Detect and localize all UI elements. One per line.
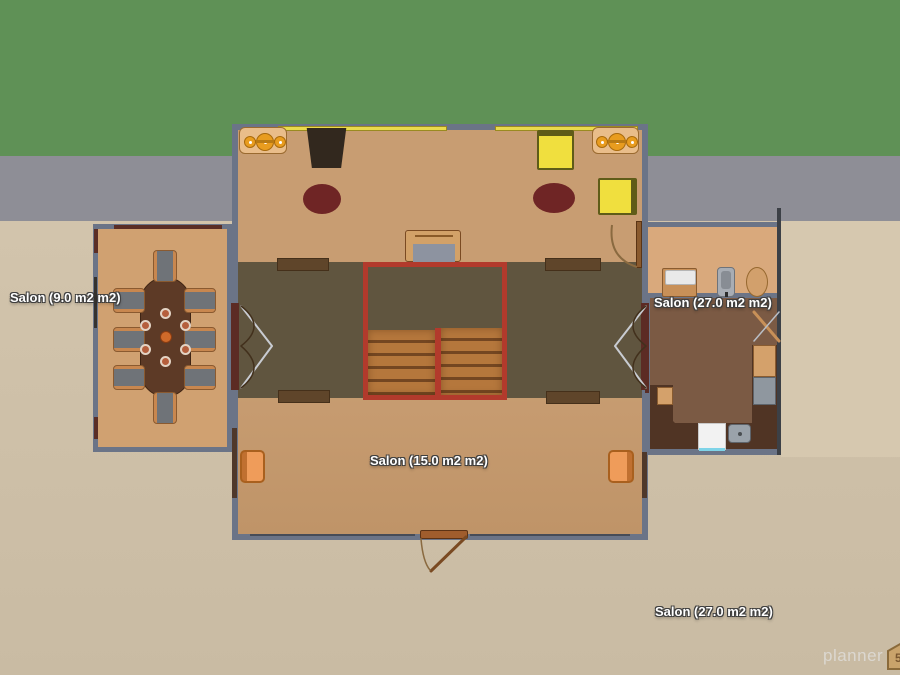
french-door-left[interactable]	[231, 303, 239, 390]
armchair-yellow-top[interactable]	[537, 130, 574, 170]
bathroom-vanity[interactable]	[662, 268, 697, 297]
window-top-left[interactable]	[278, 126, 447, 131]
ceiling-lamp-right[interactable]	[592, 127, 639, 154]
kitchen-cabinet-tan-right[interactable]	[753, 345, 776, 377]
plate[interactable]	[180, 344, 191, 355]
lamp-bulb	[244, 136, 256, 148]
floorplan-canvas: Salon (9.0 m2 m2) Salon (27.0 m2 m2) Sal…	[0, 0, 900, 675]
kitchen-cabinet-tan-left[interactable]	[657, 387, 673, 405]
vanity-sink	[665, 270, 696, 285]
watermark-badge-text: 5d	[895, 651, 900, 665]
entry-door-lintel[interactable]	[420, 530, 468, 539]
stair-divider	[435, 328, 441, 395]
bottom-wall-inner-line	[250, 534, 415, 536]
armchair-orange-right[interactable]	[608, 450, 634, 483]
sideboard-bottom-left[interactable]	[278, 390, 330, 403]
kitchen-sink[interactable]	[728, 424, 751, 443]
rug-oval-left[interactable]	[303, 184, 341, 214]
toilet[interactable]	[717, 267, 735, 297]
room-label-ground: Salon (27.0 m2 m2)	[655, 604, 773, 619]
annex-right-wall	[777, 208, 781, 455]
dining-chair-left-3[interactable]	[113, 365, 145, 390]
dining-chair-top[interactable]	[153, 250, 177, 282]
ceiling-lamp-left[interactable]	[239, 127, 287, 154]
annex-top-wall	[645, 222, 781, 227]
staircase[interactable]	[363, 262, 507, 400]
window-dining-left-1[interactable]	[94, 229, 98, 253]
kitchen-stove[interactable]	[753, 377, 776, 405]
french-door-right[interactable]	[641, 303, 649, 390]
room-label-dining: Salon (9.0 m2 m2)	[10, 290, 121, 305]
door-leaf-bathroom[interactable]	[636, 221, 642, 268]
sideboard-top-right[interactable]	[545, 258, 601, 271]
armchair-yellow-right[interactable]	[598, 178, 637, 215]
toilet-lid	[721, 271, 731, 289]
watermark-house-icon: 5d	[887, 642, 900, 670]
sideboard-top-left[interactable]	[277, 258, 329, 271]
fridge-handle	[699, 448, 725, 451]
lamp-bulb	[274, 136, 286, 148]
window-dining-top[interactable]	[114, 225, 222, 229]
table-centerpiece[interactable]	[160, 331, 172, 343]
desk[interactable]	[405, 230, 461, 262]
plate[interactable]	[140, 344, 151, 355]
plate[interactable]	[140, 320, 151, 331]
dining-chair-bottom[interactable]	[153, 392, 177, 424]
room-label-living: Salon (15.0 m2 m2)	[370, 453, 488, 468]
watermark-brand-text: planner	[823, 646, 883, 666]
desk-detail	[415, 235, 453, 237]
plate[interactable]	[160, 356, 171, 367]
plate[interactable]	[160, 308, 171, 319]
window-living-left[interactable]	[232, 428, 237, 498]
lounge-chair-dark[interactable]	[305, 128, 348, 168]
armchair-orange-left[interactable]	[240, 450, 265, 483]
stair-flight-right	[441, 328, 502, 395]
rug-oval-right[interactable]	[533, 183, 575, 213]
desk-bench	[413, 244, 455, 262]
stair-flight-left	[368, 330, 435, 395]
planner5d-watermark: planner 5d	[823, 642, 900, 670]
dining-chair-right-1[interactable]	[184, 288, 216, 313]
bath-rug-oval[interactable]	[746, 267, 768, 297]
ground-area-right	[781, 221, 900, 457]
window-dining-left-3[interactable]	[94, 417, 98, 439]
bottom-wall-inner-line	[470, 534, 630, 536]
sideboard-bottom-right[interactable]	[546, 391, 600, 404]
lamp-bulb	[596, 136, 608, 148]
dining-chair-right-3[interactable]	[184, 365, 216, 390]
kitchen-fridge[interactable]	[698, 423, 726, 450]
lamp-bulb	[626, 136, 638, 148]
room-label-bathroom: Salon (27.0 m2 m2)	[654, 295, 772, 310]
window-living-right[interactable]	[642, 452, 647, 498]
plate[interactable]	[180, 320, 191, 331]
